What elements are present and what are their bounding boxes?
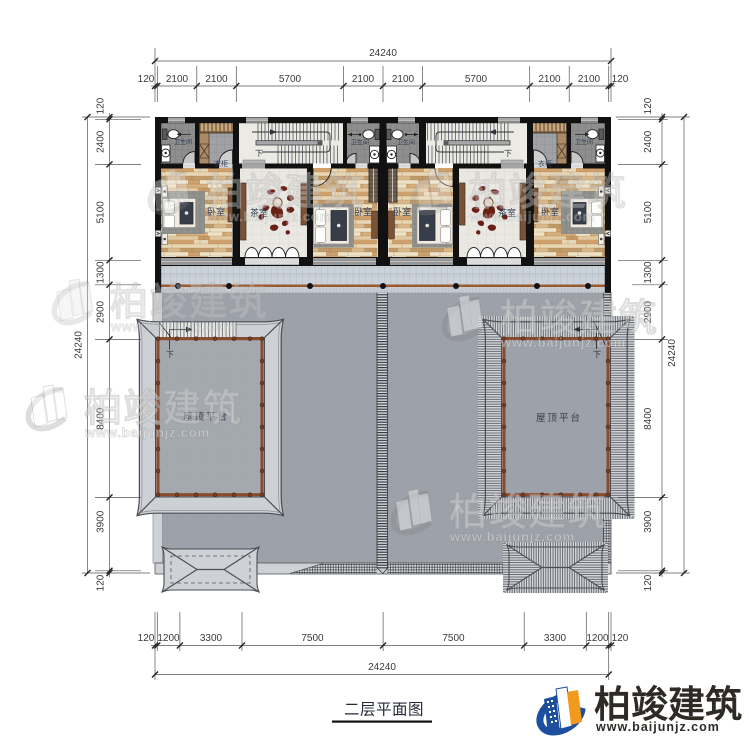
svg-text:卧室: 卧室 <box>393 206 411 217</box>
svg-text:2100: 2100 <box>578 74 601 85</box>
svg-text:120: 120 <box>138 74 155 85</box>
svg-text:24240: 24240 <box>368 662 396 673</box>
svg-text:3900: 3900 <box>96 510 107 533</box>
svg-text:柏竣建筑: 柏竣建筑 <box>594 683 742 725</box>
svg-text:卫生间: 卫生间 <box>397 139 415 147</box>
svg-text:衣柜: 衣柜 <box>214 159 228 168</box>
svg-text:7500: 7500 <box>301 633 324 644</box>
svg-text:www.baijunjz.com: www.baijunjz.com <box>595 720 720 734</box>
svg-text:120: 120 <box>643 574 654 591</box>
svg-text:2400: 2400 <box>96 130 107 153</box>
svg-text:下: 下 <box>593 350 601 359</box>
svg-text:24240: 24240 <box>369 48 397 59</box>
svg-text:7500: 7500 <box>442 633 465 644</box>
svg-text:下: 下 <box>166 350 174 359</box>
svg-text:120: 120 <box>612 74 629 85</box>
svg-text:8400: 8400 <box>643 407 654 430</box>
svg-text:1300: 1300 <box>643 261 654 284</box>
svg-text:卫生间: 卫生间 <box>174 138 192 146</box>
svg-text:卫生间: 卫生间 <box>351 139 369 147</box>
svg-text:120: 120 <box>138 633 155 644</box>
svg-text:3900: 3900 <box>643 510 654 533</box>
svg-text:2100: 2100 <box>352 74 375 85</box>
svg-text:1200: 1200 <box>586 633 609 644</box>
svg-text:24240: 24240 <box>667 339 678 367</box>
svg-text:24240: 24240 <box>74 331 85 359</box>
svg-text:5100: 5100 <box>96 201 107 224</box>
svg-text:卫生间: 卫生间 <box>575 138 593 146</box>
svg-text:120: 120 <box>643 97 654 114</box>
svg-text:1300: 1300 <box>96 261 107 284</box>
svg-text:二层平面图: 二层平面图 <box>344 702 424 719</box>
svg-text:5700: 5700 <box>279 74 302 85</box>
svg-text:下: 下 <box>255 149 263 158</box>
svg-text:120: 120 <box>96 574 107 591</box>
svg-text:2100: 2100 <box>205 74 228 85</box>
svg-text:2400: 2400 <box>643 130 654 153</box>
svg-text:屋顶平台: 屋顶平台 <box>536 412 582 424</box>
svg-text:2100: 2100 <box>166 74 189 85</box>
svg-text:5700: 5700 <box>465 74 488 85</box>
svg-text:120: 120 <box>612 633 629 644</box>
svg-text:下: 下 <box>504 149 512 158</box>
svg-text:120: 120 <box>96 97 107 114</box>
svg-text:2100: 2100 <box>392 74 415 85</box>
svg-text:2900: 2900 <box>96 300 107 323</box>
svg-text:2100: 2100 <box>538 74 561 85</box>
svg-text:1200: 1200 <box>157 633 180 644</box>
svg-text:3300: 3300 <box>200 633 223 644</box>
svg-text:衣柜: 衣柜 <box>538 159 552 168</box>
svg-text:5100: 5100 <box>643 201 654 224</box>
svg-text:3300: 3300 <box>544 633 567 644</box>
